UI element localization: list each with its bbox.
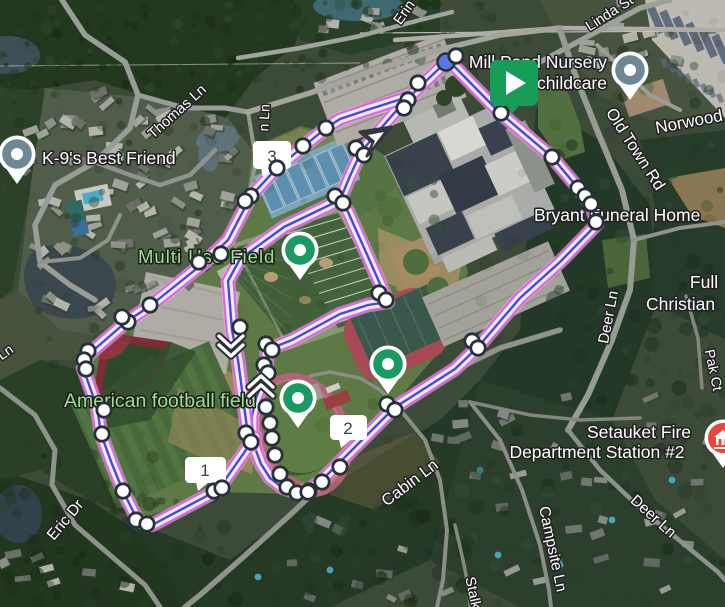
svg-text:2: 2	[343, 419, 352, 438]
svg-text:K-9's Best Friend: K-9's Best Friend	[42, 148, 176, 168]
svg-text:1: 1	[200, 461, 209, 480]
svg-text:Setauket Fire: Setauket Fire	[587, 422, 691, 442]
svg-text:Christian: Christian	[646, 294, 715, 314]
svg-text:Bryant Funeral Home: Bryant Funeral Home	[534, 205, 700, 225]
svg-text:Department Station #2: Department Station #2	[509, 442, 684, 462]
svg-text:Full: Full	[690, 272, 718, 292]
svg-text:American football field: American football field	[64, 390, 256, 412]
svg-text:n Ln: n Ln	[255, 104, 272, 132]
svg-text:Mill Pond Nursery: Mill Pond Nursery	[469, 52, 607, 72]
svg-text:childcare: childcare	[537, 73, 607, 93]
